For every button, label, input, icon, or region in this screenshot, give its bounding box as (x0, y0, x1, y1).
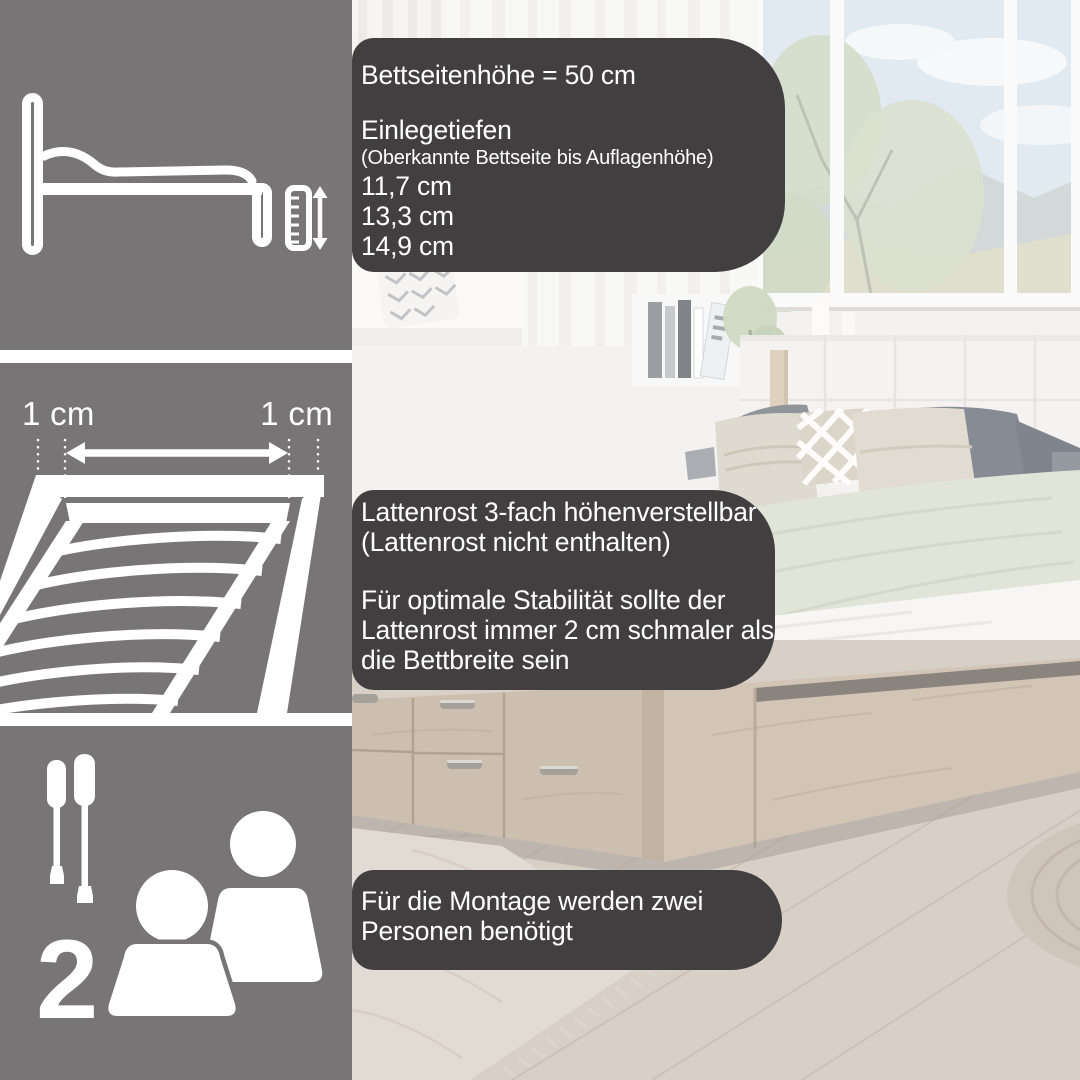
info-block-slatted-frame: Lattenrost 3-fach höhenverstellbar (Latt… (352, 490, 775, 690)
assembly-info-line: Für die Montage werden zwei (361, 886, 758, 916)
panel-bed-height (0, 0, 352, 350)
width-arrow-icon (66, 442, 288, 464)
slatted-frame-line: Lattenrost 3-fach höhenverstellbar (361, 497, 761, 527)
slatted-frame-paragraph-line: die Bettbreite sein (361, 645, 761, 675)
slatted-frame-paragraph-line: Für optimale Stabilität sollte der (361, 585, 761, 615)
slatted-frame-line: (Lattenrost nicht enthalten) (361, 527, 761, 557)
screwdrivers-icon (47, 754, 95, 903)
height-arrow-icon (313, 186, 328, 250)
info-block-assembly: Für die Montage werden zwei Personen ben… (352, 870, 782, 970)
panel-slatted-frame: 1 cm 1 cm (0, 363, 352, 713)
bed-side-view-with-ruler-icon (0, 0, 352, 350)
person-count: 2 (36, 924, 96, 1036)
bed-side-height-title: Bettseitenhöhe = 50 cm (361, 60, 761, 90)
clearance-right-label: 1 cm (260, 395, 333, 433)
insert-depth-value: 11,7 cm (361, 171, 761, 201)
slatted-frame-paragraph-line: Lattenrost immer 2 cm schmaler als (361, 615, 761, 645)
product-infographic: . (0, 0, 1080, 1080)
assembly-info-line: Personen benötigt (361, 916, 758, 946)
panel-assembly: 2 (0, 726, 352, 1080)
clearance-left-label: 1 cm (22, 395, 95, 433)
insert-depth-value: 13,3 cm (361, 201, 761, 231)
info-block-bed-side-height: Bettseitenhöhe = 50 cm Einlegetiefen (Ob… (352, 38, 785, 272)
insert-depth-note: (Oberkannte Bettseite bis Auflagenhöhe) (361, 145, 761, 171)
insert-depth-value: 14,9 cm (361, 231, 761, 261)
two-persons-icon (108, 811, 322, 1016)
insert-depth-heading: Einlegetiefen (361, 115, 761, 145)
